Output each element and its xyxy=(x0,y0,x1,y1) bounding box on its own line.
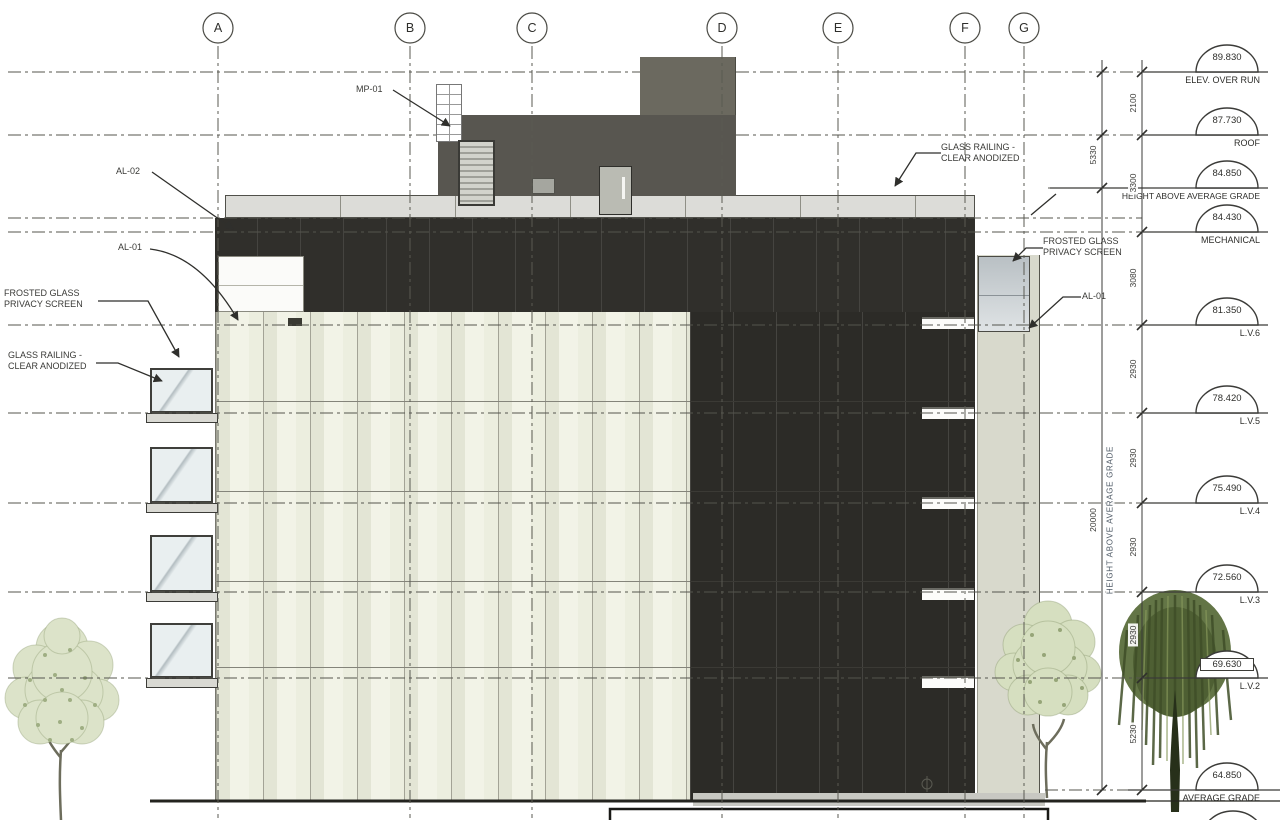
callout-line2: CLEAR ANODIZED xyxy=(941,153,1020,164)
side-wall-strip xyxy=(977,255,1040,793)
elev-label: L.V.5 xyxy=(1050,416,1260,426)
elev-value: 75.490 xyxy=(1197,483,1257,494)
floor-line xyxy=(215,667,690,668)
roof-access-ladder xyxy=(436,84,462,142)
grid-bubble-f: F xyxy=(950,21,980,35)
elev-value: 69.630 xyxy=(1200,658,1254,671)
floor-line xyxy=(215,581,690,582)
elev-value: 89.830 xyxy=(1197,52,1257,63)
balcony-glass-railing xyxy=(150,535,213,592)
elev-label: L.V.3 xyxy=(1050,595,1260,605)
elev-value: 78.420 xyxy=(1197,393,1257,404)
callout-al01-right: AL-01 xyxy=(1082,291,1106,302)
grid-bubble-c: C xyxy=(517,21,547,35)
dim-text: 2930 xyxy=(1128,447,1138,470)
elev-label: ELEV. OVER RUN xyxy=(1050,75,1260,85)
entry-outline xyxy=(610,809,1048,820)
callout-al01-left: AL-01 xyxy=(118,242,142,253)
window-slit xyxy=(922,317,974,329)
floor-line xyxy=(215,491,690,492)
roof-door xyxy=(599,166,632,215)
tree-left xyxy=(5,618,119,820)
roof-vent xyxy=(532,178,555,194)
callout-glass-railing-right: GLASS RAILING - CLEAR ANODIZED xyxy=(941,142,1020,163)
dim-text: 2100 xyxy=(1128,92,1138,115)
dim-text: 3300 xyxy=(1128,172,1138,195)
grid-bubble-b: B xyxy=(395,21,425,35)
frosted-privacy-screen xyxy=(978,256,1030,332)
balcony-slab xyxy=(146,503,218,513)
callout-line1: GLASS RAILING - xyxy=(941,142,1020,153)
height-axis-label: HEIGHT ABOVE AVERAGE GRADE xyxy=(1106,444,1115,596)
elev-label: HEIGHT ABOVE AVERAGE GRADE xyxy=(1050,191,1260,201)
elev-value: 81.350 xyxy=(1197,305,1257,316)
window-slit xyxy=(922,676,974,688)
elev-label: AVERAGE GRADE xyxy=(1050,793,1260,803)
elev-value: 87.730 xyxy=(1197,115,1257,126)
dark-floor-line xyxy=(690,581,975,582)
dim-text: 2930 xyxy=(1128,536,1138,559)
callout-al02: AL-02 xyxy=(116,166,140,177)
dark-floor-line xyxy=(690,401,975,402)
door-handle xyxy=(622,177,625,199)
panel-joint xyxy=(219,285,303,286)
elev-label: L.V.6 xyxy=(1050,328,1260,338)
floor-line xyxy=(215,401,690,402)
dark-floor-line xyxy=(690,667,975,668)
callout-line2: PRIVACY SCREEN xyxy=(4,299,83,310)
dark-facade xyxy=(690,312,975,800)
mechanical-louver xyxy=(458,140,495,206)
dark-floor-line xyxy=(690,491,975,492)
dim-text: 5230 xyxy=(1128,723,1138,746)
elev-label: ROOF xyxy=(1050,138,1260,148)
callout-line2: PRIVACY SCREEN xyxy=(1043,247,1122,258)
dim-text: 3080 xyxy=(1128,267,1138,290)
balcony-slab xyxy=(146,413,218,423)
upper-dark-band xyxy=(215,218,975,312)
callout-line1: FROSTED GLASS xyxy=(4,288,83,299)
callout-glass-railing-left: GLASS RAILING - CLEAR ANODIZED xyxy=(8,350,87,371)
window-slit xyxy=(922,407,974,419)
elev-label: L.V.2 xyxy=(1050,681,1260,691)
elev-value: 72.560 xyxy=(1197,572,1257,583)
callout-line1: FROSTED GLASS xyxy=(1043,236,1122,247)
elev-value: 84.430 xyxy=(1197,212,1257,223)
balcony-glass-railing xyxy=(150,623,213,678)
cream-facade xyxy=(215,312,690,800)
marker-arcs xyxy=(1196,45,1264,820)
dim-text: 2930 xyxy=(1128,358,1138,381)
screen-joint xyxy=(979,295,1029,296)
dim-text: 2930 xyxy=(1128,624,1138,647)
grid-bubbles xyxy=(203,13,1039,43)
elev-value: 64.850 xyxy=(1197,770,1257,781)
callout-frosted-glass-left: FROSTED GLASS PRIVACY SCREEN xyxy=(4,288,83,309)
elevation-drawing-sheet: A B C D E F G 89.830 ELEV. OVER RUN 87.7… xyxy=(0,0,1280,820)
penthouse-upper-stack xyxy=(640,57,736,115)
callout-mp01: MP-01 xyxy=(356,84,383,95)
grid-bubble-g: G xyxy=(1009,21,1039,35)
dim-text: 5330 xyxy=(1088,144,1098,167)
elev-value: 84.850 xyxy=(1197,168,1257,179)
callout-line1: GLASS RAILING - xyxy=(8,350,87,361)
base-strip xyxy=(693,793,1045,806)
balcony-slab xyxy=(146,592,218,602)
dim-text: 20000 xyxy=(1088,506,1098,534)
balcony-slab xyxy=(146,678,218,688)
window-slit xyxy=(922,588,974,600)
aluminum-panel-white xyxy=(218,256,304,312)
grid-bubble-d: D xyxy=(707,21,737,35)
window-slit xyxy=(922,497,974,509)
grid-bubble-a: A xyxy=(203,21,233,35)
balcony-glass-railing xyxy=(150,447,213,503)
grid-bubble-e: E xyxy=(823,21,853,35)
elev-label: L.V.4 xyxy=(1050,506,1260,516)
facade-notch xyxy=(288,318,302,326)
callout-line2: CLEAR ANODIZED xyxy=(8,361,87,372)
balcony-glass-railing xyxy=(150,368,213,413)
callout-frosted-glass-right: FROSTED GLASS PRIVACY SCREEN xyxy=(1043,236,1122,257)
